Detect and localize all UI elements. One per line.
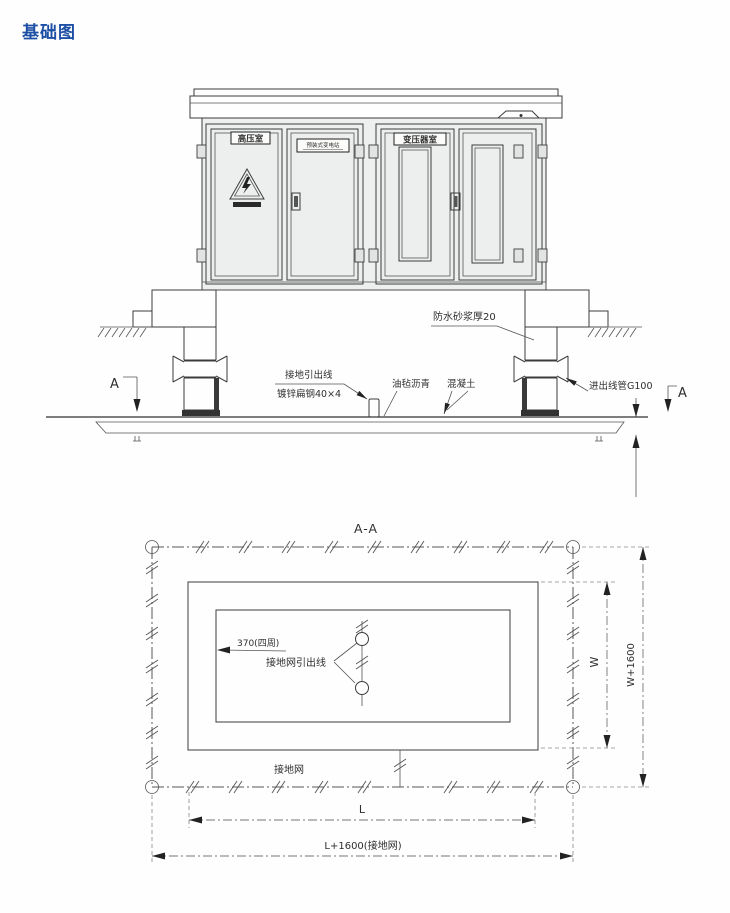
plan-dimensions: L L+1600(接地网) W: [152, 547, 651, 862]
hv-room-label: 高压室: [238, 134, 264, 145]
concrete-label: 混凝土: [447, 378, 476, 390]
plan-annotations: 370(四周) 接地网引出线 接地网: [217, 638, 406, 787]
ground-lead-label-2: 镀锌扁钢40×4: [277, 388, 341, 400]
ground-lead-label-1: 接地引出线: [285, 369, 333, 381]
break-marks: [146, 541, 579, 793]
grid-lead-label: 接地网引出线: [266, 656, 326, 669]
plan-view: A-A: [146, 521, 652, 862]
foundation-ring: [188, 582, 538, 750]
wall-thickness-label: 370(四周): [237, 638, 279, 649]
elevation-annotations: 防水砂浆厚20 接地引出线 镀锌扁钢40×4 油毡沥青 混凝土 进出线管G100…: [110, 310, 687, 497]
ground-hatch: [98, 327, 642, 337]
transformer-left-door: [381, 129, 454, 280]
waterproof-coating-right: [522, 378, 527, 410]
transformer-right-door: [459, 129, 536, 280]
waterproof-coating-left: [214, 378, 219, 410]
ground-lead-pipe: [369, 399, 379, 417]
asphalt-label: 油毡沥青: [392, 378, 430, 390]
waterproof-label: 防水砂浆厚20: [433, 310, 496, 323]
grid-label: 接地网: [274, 763, 304, 776]
foundation-drawing: 高压室 预装式变电站: [0, 0, 730, 913]
svg-text:A: A: [110, 377, 119, 392]
section-marker-left: A: [110, 377, 141, 412]
name-plate-label: 预装式变电站: [306, 141, 340, 149]
transformer-room-label: 变压器室: [403, 135, 438, 146]
cabinet-roof: [190, 89, 562, 118]
cabinet-body: 高压室 预装式变电站: [197, 118, 547, 290]
length-outer-dim: L+1600(接地网): [324, 839, 401, 852]
grounding-grid-boundary: [146, 541, 580, 794]
elevation-view: 高压室 预装式变电站: [46, 89, 687, 497]
foundation-piers: [98, 290, 642, 416]
plan-title: A-A: [354, 521, 378, 536]
width-inner-dim: W: [588, 656, 601, 667]
roof-vent: [498, 111, 539, 118]
svg-text:A: A: [678, 386, 687, 401]
width-outer-dim: W+1600: [626, 643, 637, 687]
drawing-canvas: 基础图: [0, 0, 730, 913]
conduit-label: 进出线管G100: [589, 380, 653, 392]
depth-dimension: [633, 398, 640, 497]
grounding-lead-points: [356, 620, 369, 706]
section-marker-right: A: [665, 386, 688, 412]
length-inner-dim: L: [359, 803, 366, 816]
